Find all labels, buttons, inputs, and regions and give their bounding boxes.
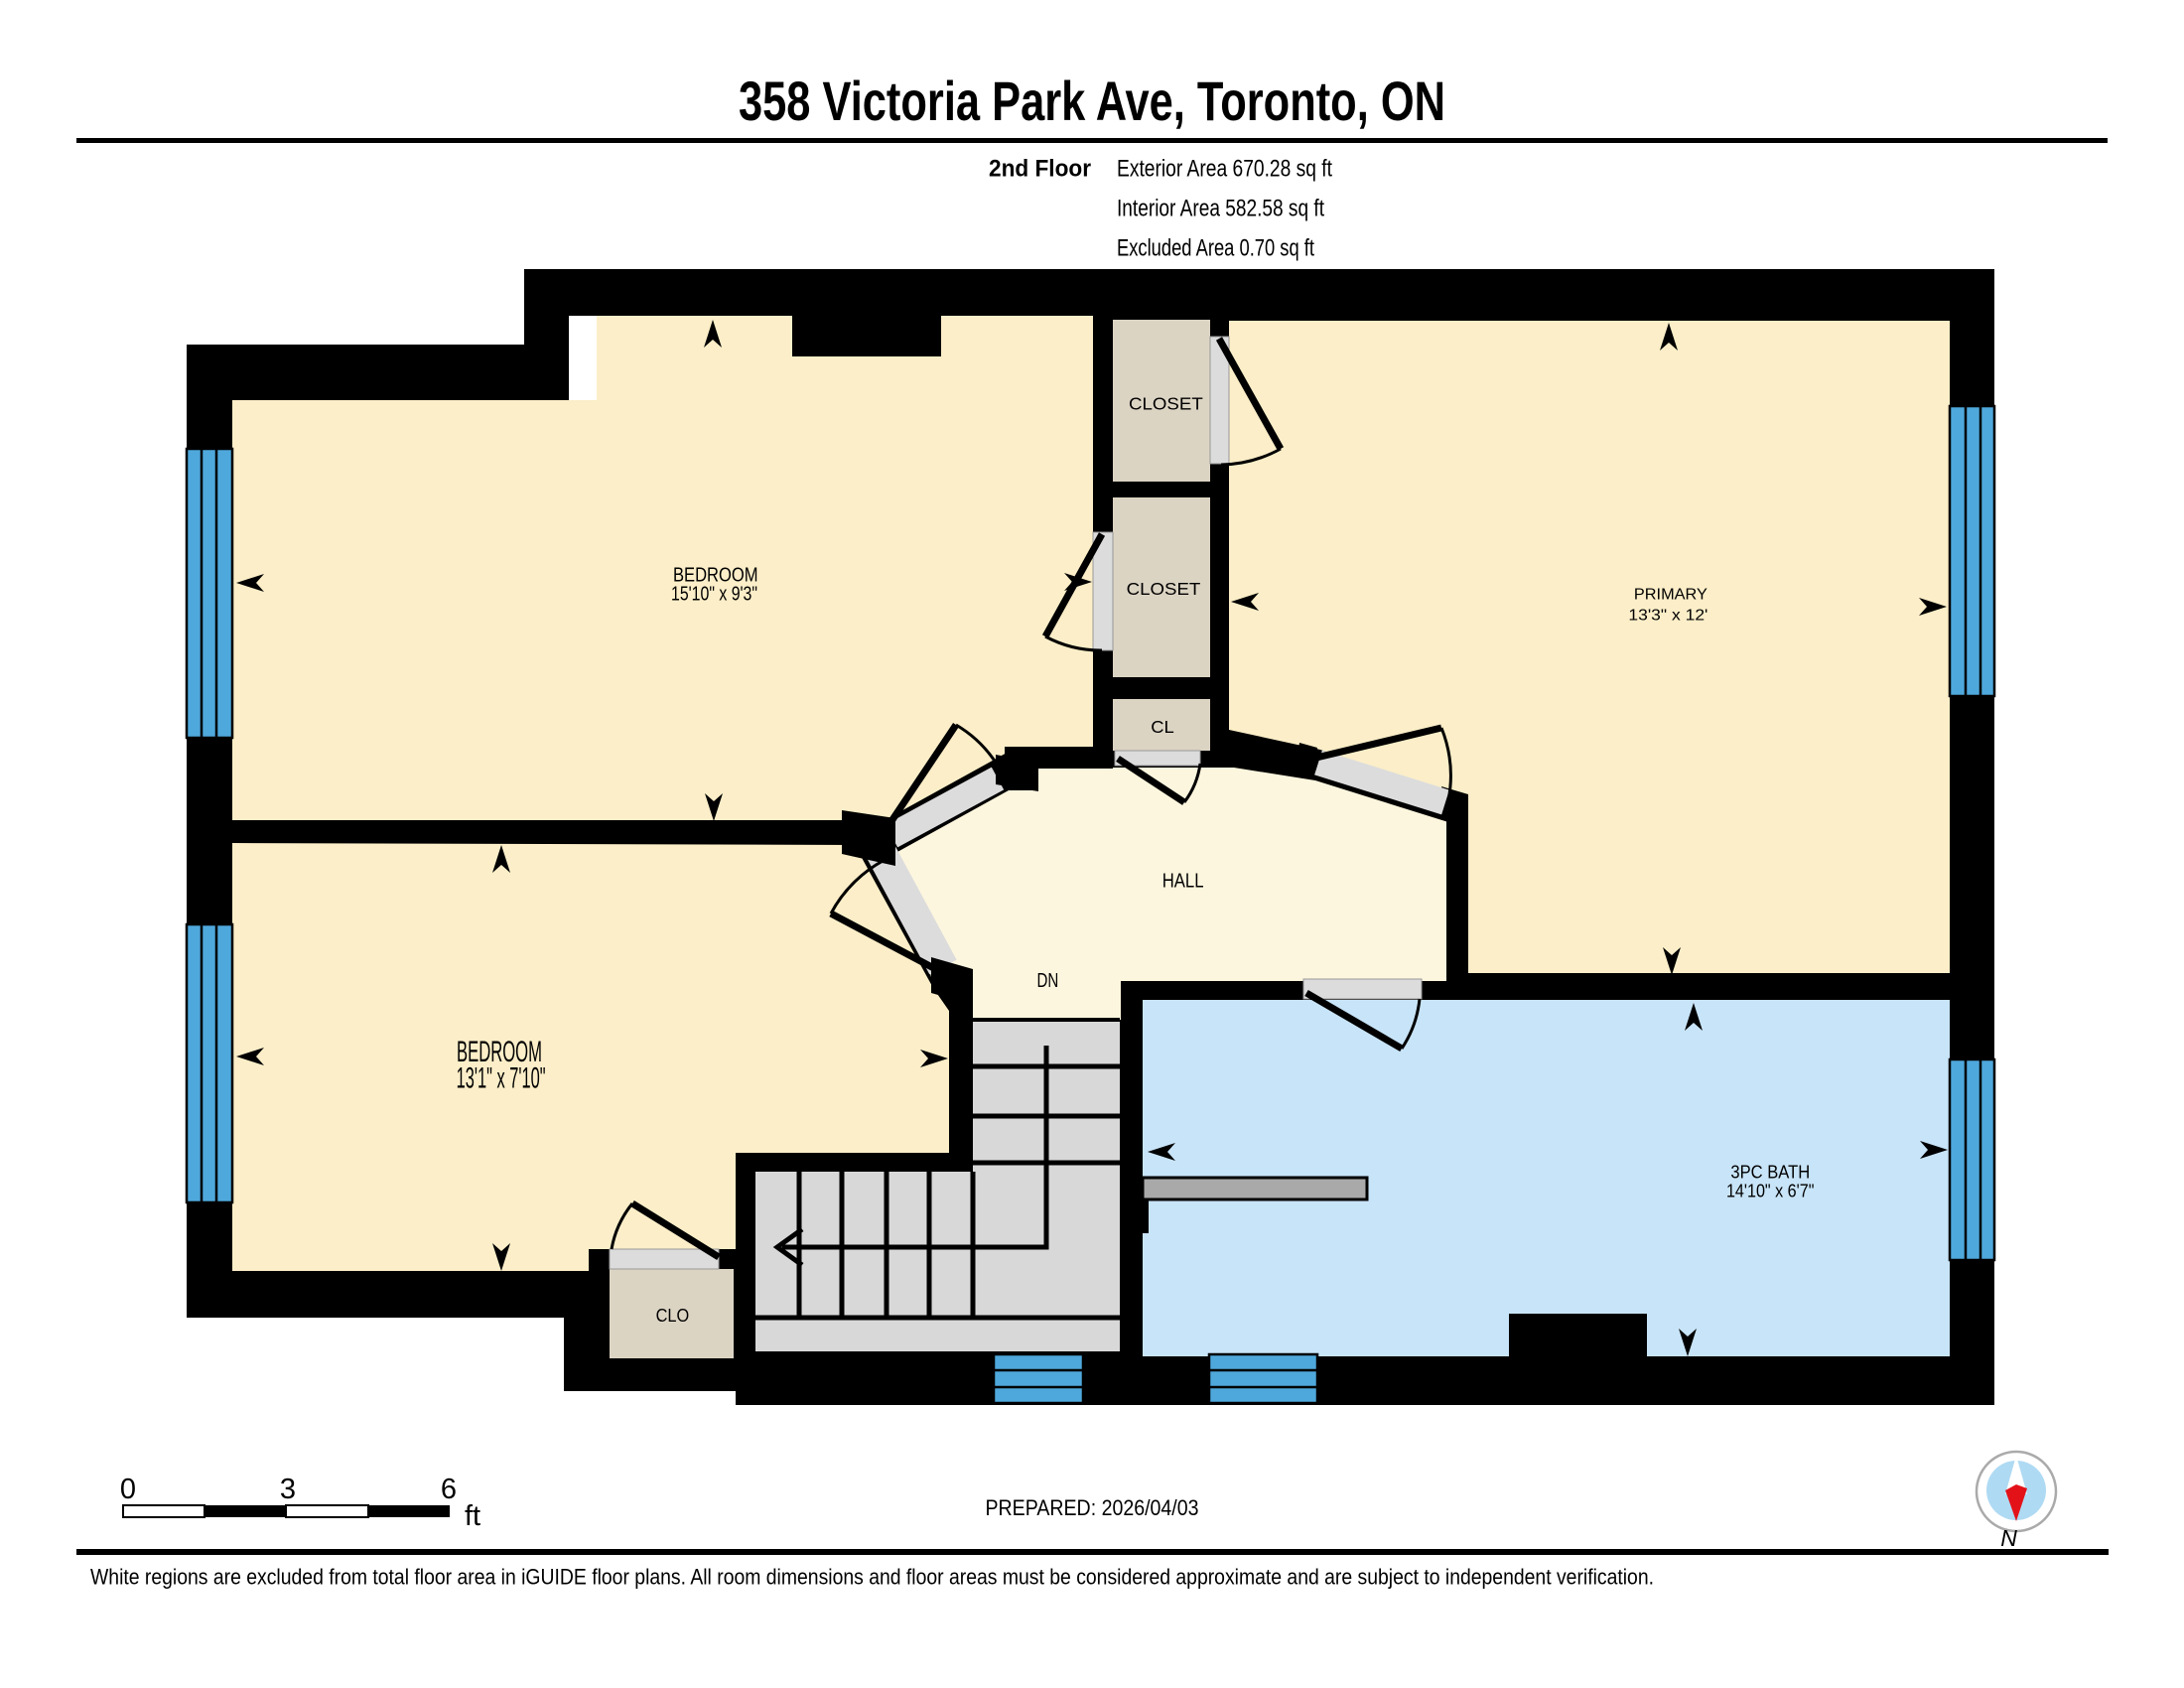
svg-text:N: N: [2000, 1525, 2017, 1551]
svg-text:DN: DN: [1037, 970, 1059, 992]
svg-text:PREPARED: 2026/04/03: PREPARED: 2026/04/03: [986, 1495, 1199, 1520]
svg-text:White regions are excluded fro: White regions are excluded from total fl…: [90, 1565, 1654, 1590]
svg-text:CL: CL: [1151, 717, 1174, 737]
svg-text:CLOSET: CLOSET: [1129, 393, 1203, 413]
svg-text:13'1" x 7'10": 13'1" x 7'10": [457, 1062, 546, 1095]
svg-text:15'10" x 9'3": 15'10" x 9'3": [671, 583, 757, 605]
svg-text:3PC BATH: 3PC BATH: [1730, 1162, 1810, 1183]
svg-text:Exterior Area 670.28 sq ft: Exterior Area 670.28 sq ft: [1117, 156, 1332, 183]
svg-text:Excluded Area 0.70 sq ft: Excluded Area 0.70 sq ft: [1117, 235, 1314, 262]
svg-text:CLOSET: CLOSET: [1127, 579, 1201, 599]
svg-text:358 Victoria Park Ave, Toronto: 358 Victoria Park Ave, Toronto, ON: [739, 70, 1445, 132]
svg-text:HALL: HALL: [1162, 871, 1204, 893]
svg-text:13'3" x 12': 13'3" x 12': [1628, 607, 1707, 625]
svg-text:ft: ft: [465, 1500, 480, 1532]
svg-text:Interior Area 582.58 sq ft: Interior Area 582.58 sq ft: [1117, 196, 1324, 222]
svg-text:PRIMARY: PRIMARY: [1634, 585, 1707, 603]
svg-text:3: 3: [280, 1474, 296, 1505]
svg-text:6: 6: [441, 1474, 457, 1505]
svg-text:CLO: CLO: [656, 1305, 690, 1326]
svg-text:2nd Floor: 2nd Floor: [989, 156, 1091, 183]
svg-text:0: 0: [120, 1474, 136, 1505]
svg-text:14'10" x 6'7": 14'10" x 6'7": [1726, 1181, 1815, 1201]
